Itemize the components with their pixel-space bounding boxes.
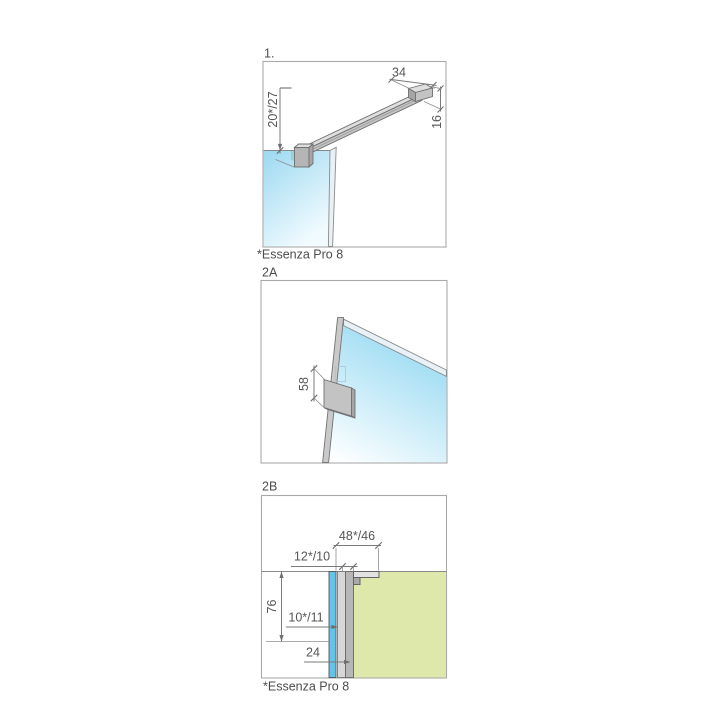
glass-clamp-side — [309, 144, 313, 167]
extension-line — [424, 102, 442, 110]
bracket-block — [354, 578, 361, 585]
dimension-24-value: 24 — [306, 646, 320, 660]
dimension-arrow — [279, 635, 283, 642]
mounting-plate-edge — [352, 388, 356, 418]
figure-2b-label: 2B — [262, 480, 277, 494]
dimension-76: 76 — [265, 572, 329, 642]
extension-line — [314, 369, 326, 381]
dimension-12-10-value: 12*/10 — [294, 550, 330, 564]
figure-1-label: 1. — [264, 47, 274, 61]
dimension-58-value: 58 — [297, 377, 311, 391]
support-bar-top — [305, 93, 422, 149]
support-bar-groove — [309, 97, 422, 151]
figure-1-panel: 1. 34 — [257, 47, 446, 262]
figure-1-footnote: *Essenza Pro 8 — [257, 248, 343, 262]
wall-section — [354, 572, 447, 678]
dimension-10-11-value: 10*/11 — [288, 611, 323, 625]
dimension-16-value: 16 — [430, 115, 444, 129]
wall-bracket-plate — [354, 572, 380, 578]
figure-2a-panel: 2A 58 — [261, 266, 447, 464]
dimension-48-46-value: 48*/46 — [339, 529, 375, 543]
figure-2b-footnote: *Essenza Pro 8 — [263, 680, 349, 694]
dimension-12-10: 12*/10 — [291, 550, 358, 572]
dimension-48-46: 48*/46 — [333, 529, 382, 571]
dimension-20-27: 20*/27 — [266, 88, 292, 154]
dimension-20-27-value: 20*/27 — [266, 91, 280, 127]
figure-2a-label: 2A — [262, 266, 278, 280]
dimension-58: 58 — [297, 365, 326, 409]
dimension-arrow — [279, 572, 283, 579]
diagram-page: 1. 34 — [0, 0, 720, 720]
dimension-76-value: 76 — [265, 600, 279, 614]
figure-2b-panel: 2B 48*/46 12*/10 — [262, 480, 447, 694]
dimension-34: 34 — [389, 66, 437, 89]
glass-edge-face — [328, 147, 336, 246]
clamp-back-jaw — [291, 151, 295, 161]
glass-clamp-front — [295, 148, 310, 168]
installation-diagram: 1. 34 — [0, 0, 720, 720]
